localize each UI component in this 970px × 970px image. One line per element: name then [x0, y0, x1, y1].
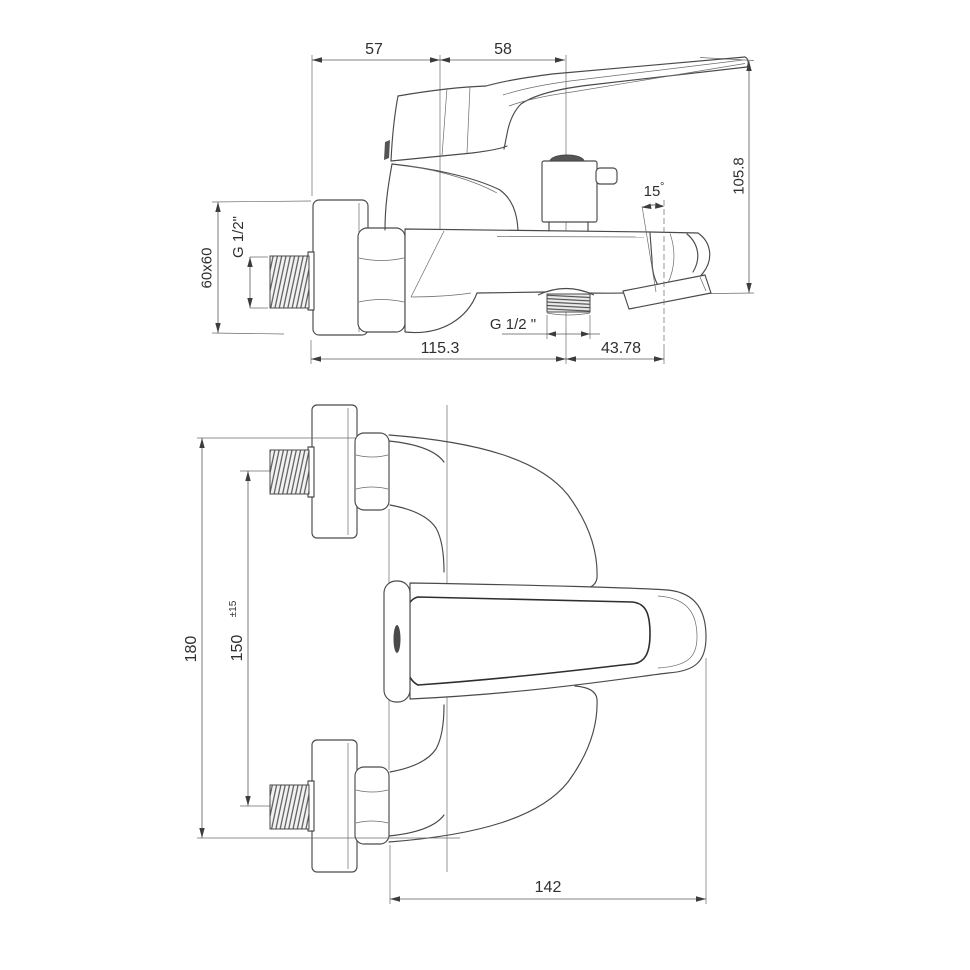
- body-curve-upper-inner: [389, 441, 444, 462]
- outlet-thread: [547, 294, 590, 312]
- arrowhead: [390, 896, 400, 901]
- side-view: 57 58 105.8 60x60 G 1/2: [199, 41, 755, 364]
- dim-label-57: 57: [365, 41, 383, 58]
- dim-top-57-58: 57 58: [312, 41, 565, 63]
- dim-label-43-78: 43.78: [601, 340, 641, 357]
- handle-cap-left: [391, 96, 398, 161]
- diverter-cap: [550, 155, 584, 161]
- body-curve-lower-inner: [389, 815, 444, 836]
- arrowhead: [566, 356, 576, 361]
- outlet-bottom: [547, 313, 590, 315]
- arrowhead: [556, 356, 566, 361]
- dim-label-142: 142: [535, 879, 562, 896]
- diverter-tab: [596, 168, 617, 184]
- arrowhead: [642, 204, 652, 210]
- union-nut: [358, 228, 405, 332]
- dim-label-150: 150: [229, 635, 246, 662]
- technical-drawing-canvas: 57 58 105.8 60x60 G 1/2: [0, 0, 970, 970]
- arrowhead: [245, 471, 250, 481]
- arrowhead: [581, 331, 590, 336]
- handle-trim: [384, 140, 390, 160]
- arrowhead: [696, 896, 706, 901]
- lever-bottom-edge: [504, 67, 747, 149]
- handle-plan: [384, 581, 706, 702]
- dim-label-tolerance: ±15: [228, 600, 239, 617]
- dim-label-105-8: 105.8: [731, 157, 748, 195]
- union-nut-side: [358, 228, 405, 332]
- body-curve-lower-outer: [389, 686, 597, 842]
- arrowhead: [312, 57, 322, 62]
- diverter-body: [542, 161, 597, 222]
- skirt-inner: [409, 166, 497, 193]
- wall-plate-lower: [312, 740, 357, 872]
- dim-label-58: 58: [494, 41, 512, 58]
- arrowhead: [247, 257, 252, 267]
- body-curve-upper-outer: [389, 435, 597, 591]
- arrowhead: [215, 202, 220, 212]
- dim-spacing-150: 150 ±15: [228, 471, 251, 806]
- arrowhead: [245, 796, 250, 806]
- arrowhead: [199, 438, 204, 448]
- arrowhead: [311, 356, 321, 361]
- dim-label-15: 15: [644, 183, 661, 200]
- dim-label-g12-inlet: G 1/2": [230, 216, 247, 258]
- lever-tip: [745, 57, 748, 67]
- handle-facet: [467, 87, 470, 154]
- handle-facet: [442, 88, 447, 156]
- body-curve-lower-small: [390, 705, 444, 772]
- handle-cap-bottom: [391, 146, 507, 161]
- upper-wall-connection: [270, 405, 389, 538]
- handle-logo-mark: [394, 625, 401, 653]
- dim-inlet-thread: G 1/2": [230, 216, 268, 308]
- dim-bottom-115-43: 115.3 43.78: [311, 340, 664, 364]
- skirt-left-edge: [385, 164, 392, 230]
- arrowhead: [430, 57, 440, 62]
- dim-label-60x60: 60x60: [199, 248, 216, 289]
- arrowhead: [199, 828, 204, 838]
- lower-wall-connection: [270, 740, 389, 872]
- thread-nipple-upper: [270, 450, 309, 494]
- thread-nipple-lower: [270, 785, 309, 829]
- faucet-technical-drawing: 57 58 105.8 60x60 G 1/2: [0, 0, 970, 970]
- lever-inner-line: [503, 60, 743, 95]
- dim-label-115-3: 115.3: [421, 340, 460, 357]
- arrowhead: [247, 298, 252, 308]
- handle-cap-top: [398, 86, 486, 96]
- skirt-dome: [392, 164, 518, 230]
- inlet-nipple-side: [270, 252, 314, 310]
- inlet-thread-nipple: [270, 256, 309, 308]
- plan-view: 180 150 ±15 142: [183, 405, 706, 904]
- dim-outlet-thread: G 1/2 ": [490, 315, 600, 339]
- degree-symbol: °: [660, 181, 664, 193]
- dim-label-180: 180: [183, 636, 200, 663]
- arrowhead: [440, 57, 450, 62]
- body-curve-upper-small: [390, 505, 444, 572]
- arrowhead: [555, 57, 565, 62]
- union-nut-upper: [355, 433, 389, 510]
- outlet-thread-side: [538, 289, 594, 316]
- diverter-knob: [542, 155, 617, 231]
- arrowhead: [547, 331, 556, 336]
- dim-label-g12-outlet: G 1/2 ": [490, 316, 536, 333]
- arrowhead: [746, 283, 751, 293]
- arrowhead: [654, 356, 664, 361]
- handle-skirt-side: [385, 164, 518, 230]
- arrowhead: [215, 323, 220, 333]
- wall-plate-upper: [312, 405, 357, 538]
- union-nut-lower: [355, 767, 389, 844]
